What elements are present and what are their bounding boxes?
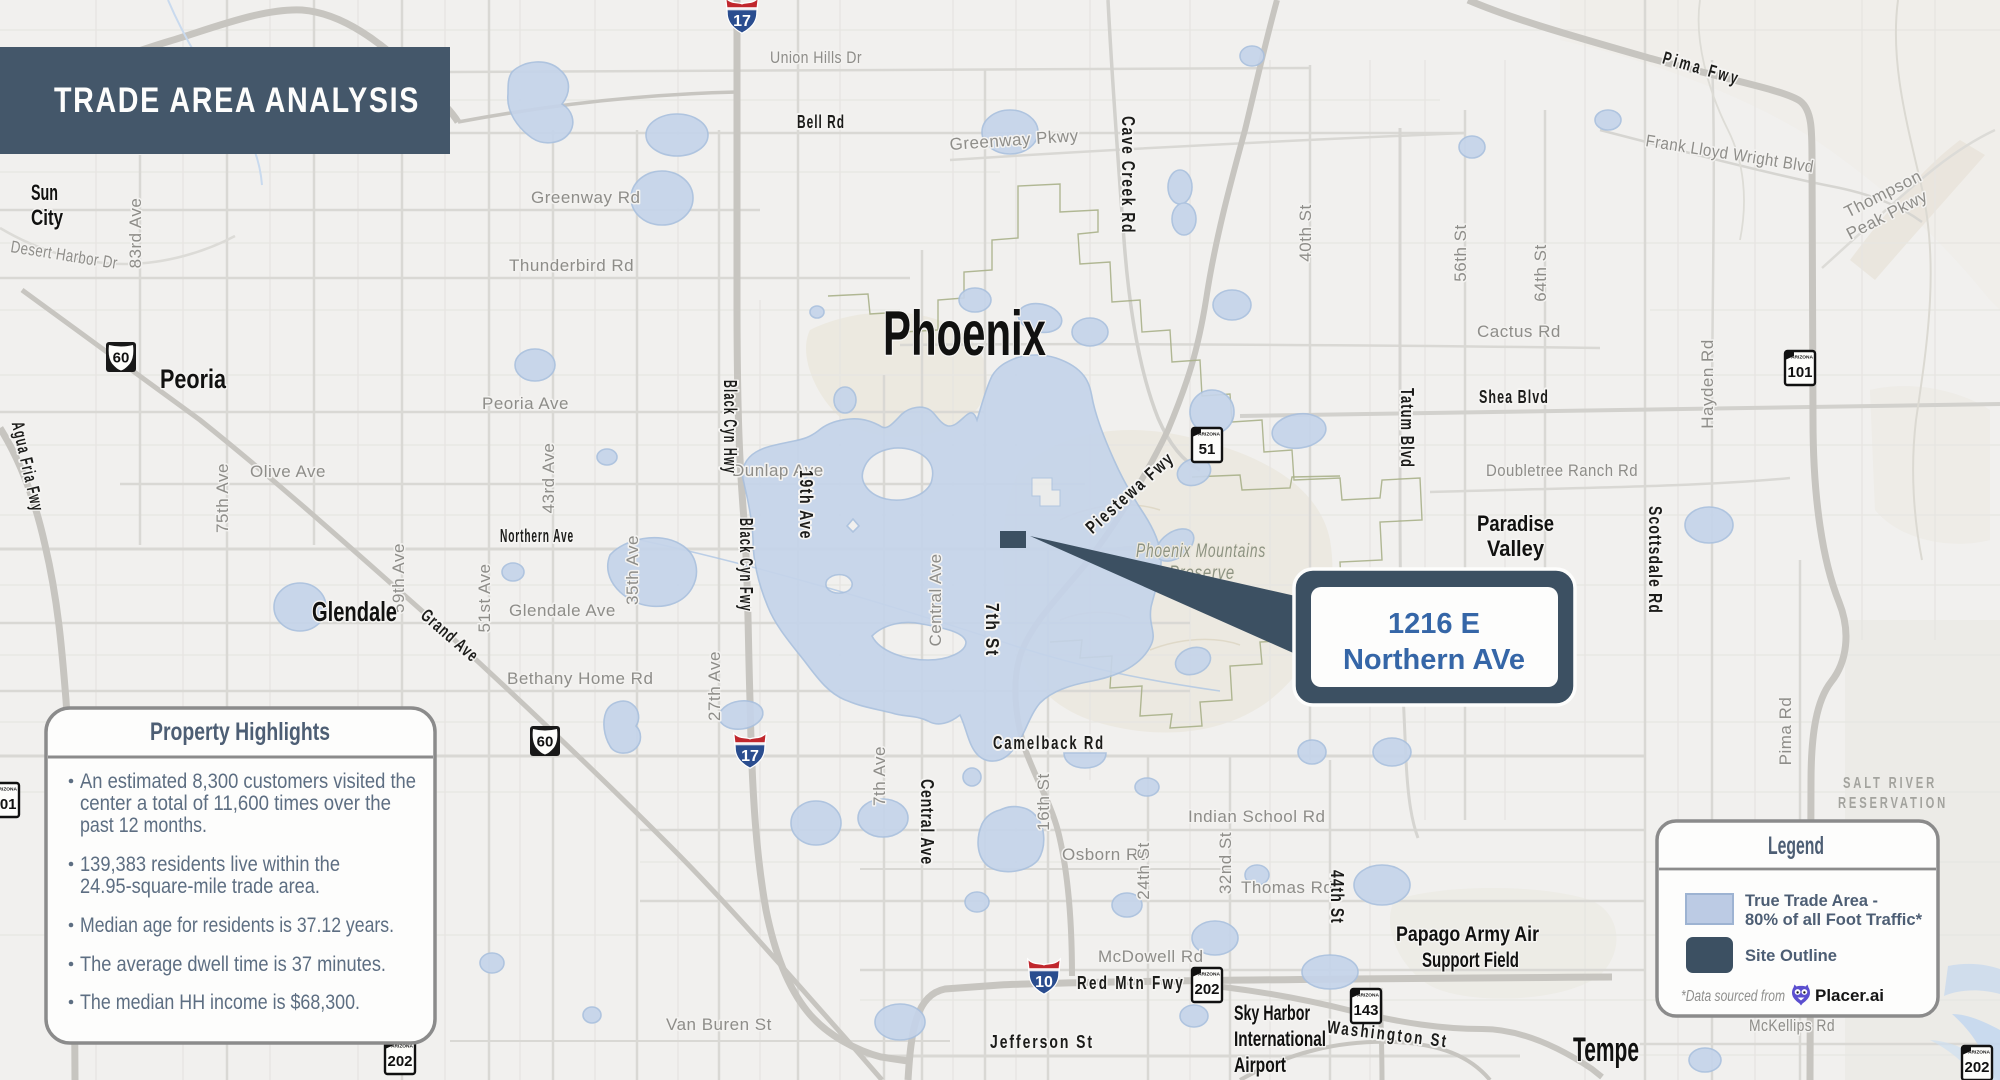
- svg-text:McKellips Rd: McKellips Rd: [1749, 1016, 1835, 1035]
- svg-text:64th St: 64th St: [1531, 244, 1550, 301]
- svg-text:The median HH income is $68,30: The median HH income is $68,300.: [80, 991, 360, 1014]
- svg-text:Black Cyn Fwy: Black Cyn Fwy: [736, 518, 756, 612]
- svg-text:60: 60: [537, 734, 554, 751]
- svg-text:1216 E: 1216 E: [1388, 608, 1480, 640]
- svg-text:Black Cyn Hwy: Black Cyn Hwy: [720, 380, 740, 474]
- svg-text:The average dwell time is 37 m: The average dwell time is 37 minutes.: [80, 953, 386, 976]
- svg-text:Red Mtn Fwy: Red Mtn Fwy: [1077, 973, 1185, 993]
- svg-text:Glendale: Glendale: [312, 596, 397, 627]
- svg-text:19th Ave: 19th Ave: [796, 470, 816, 540]
- svg-text:17: 17: [733, 13, 751, 30]
- svg-text:51st Ave: 51st Ave: [475, 564, 494, 633]
- svg-text:Phoenix: Phoenix: [883, 299, 1046, 369]
- svg-text:Jefferson St: Jefferson St: [990, 1032, 1094, 1052]
- svg-text:Indian School Rd: Indian School Rd: [1188, 807, 1325, 826]
- svg-text:7th Ave: 7th Ave: [870, 746, 889, 806]
- svg-text:Greenway Rd: Greenway Rd: [531, 188, 640, 207]
- svg-text:Scottsdale Rd: Scottsdale Rd: [1645, 506, 1665, 614]
- svg-text:Tatum Blvd: Tatum Blvd: [1397, 388, 1417, 468]
- svg-text:43rd Ave: 43rd Ave: [539, 443, 558, 514]
- svg-text:True Trade Area -: True Trade Area -: [1745, 892, 1878, 910]
- svg-text:17: 17: [741, 748, 759, 765]
- svg-text:Olive Ave: Olive Ave: [250, 462, 326, 481]
- svg-text:RESERVATION: RESERVATION: [1838, 795, 1948, 812]
- svg-text:*Data sourced from: *Data sourced from: [1681, 988, 1785, 1005]
- svg-text:Support Field: Support Field: [1422, 949, 1519, 972]
- svg-text:51: 51: [1199, 441, 1216, 458]
- svg-text:Camelback Rd: Camelback Rd: [993, 733, 1105, 753]
- svg-text:143: 143: [1353, 1002, 1378, 1019]
- svg-text:Doubletree Ranch Rd: Doubletree Ranch Rd: [1486, 461, 1638, 480]
- svg-text:Airport: Airport: [1234, 1054, 1286, 1077]
- svg-text:Northern AVe: Northern AVe: [1343, 644, 1525, 676]
- svg-text:Thomas Rd: Thomas Rd: [1241, 878, 1333, 897]
- svg-text:24th St: 24th St: [1134, 842, 1153, 899]
- svg-text:Pima Rd: Pima Rd: [1776, 697, 1795, 766]
- svg-text:27th Ave: 27th Ave: [705, 651, 724, 721]
- svg-text:202: 202: [387, 1053, 412, 1070]
- svg-text:Union Hills Dr: Union Hills Dr: [770, 48, 862, 67]
- svg-text:Thunderbird Rd: Thunderbird Rd: [509, 256, 634, 275]
- svg-text:7th St: 7th St: [982, 603, 1002, 657]
- svg-text:Northern Ave: Northern Ave: [500, 526, 574, 546]
- svg-text:Paradise: Paradise: [1477, 511, 1554, 536]
- svg-text:Peoria: Peoria: [160, 364, 227, 394]
- svg-text:Median age for residents is 37: Median age for residents is 37.12 years.: [80, 914, 394, 937]
- svg-text:Bethany Home Rd: Bethany Home Rd: [507, 669, 653, 688]
- svg-text:Bell Rd: Bell Rd: [797, 112, 845, 132]
- svg-text:Papago Army Air: Papago Army Air: [1396, 923, 1539, 946]
- svg-text:Central Ave: Central Ave: [926, 553, 945, 646]
- svg-text:Placer.ai: Placer.ai: [1815, 986, 1884, 1005]
- svg-text:101: 101: [0, 796, 17, 813]
- svg-text:center a total of 11,600 times: center a total of 11,600 times over the: [80, 792, 391, 815]
- svg-text:60: 60: [113, 350, 130, 367]
- svg-text:Van Buren St: Van Buren St: [666, 1015, 772, 1034]
- svg-text:Phoenix Mountains: Phoenix Mountains: [1136, 541, 1266, 562]
- svg-text:83rd Ave: 83rd Ave: [126, 198, 145, 269]
- svg-text:56th St: 56th St: [1451, 224, 1470, 281]
- svg-text:Site Outline: Site Outline: [1745, 947, 1837, 965]
- svg-text:International: International: [1234, 1028, 1326, 1051]
- svg-text:24.95-square-mile trade area.: 24.95-square-mile trade area.: [80, 875, 320, 898]
- svg-text:Cactus Rd: Cactus Rd: [1477, 322, 1561, 341]
- svg-text:202: 202: [1964, 1059, 1989, 1076]
- svg-text:City: City: [31, 205, 64, 230]
- svg-text:35th Ave: 35th Ave: [623, 535, 642, 605]
- svg-text:16th St: 16th St: [1034, 773, 1053, 830]
- svg-text:Sky Harbor: Sky Harbor: [1234, 1002, 1310, 1025]
- svg-text:Glendale Ave: Glendale Ave: [509, 601, 616, 620]
- svg-text:40th St: 40th St: [1296, 204, 1315, 261]
- svg-text:10: 10: [1035, 974, 1053, 991]
- svg-text:past 12 months.: past 12 months.: [80, 814, 207, 837]
- svg-text:Property Highlights: Property Highlights: [150, 718, 330, 746]
- svg-text:101: 101: [1787, 364, 1812, 381]
- svg-text:Central Ave: Central Ave: [917, 779, 937, 865]
- svg-text:139,383 residents live within: 139,383 residents live within the: [80, 853, 340, 876]
- svg-text:McDowell Rd: McDowell Rd: [1098, 947, 1204, 966]
- svg-text:Valley: Valley: [1487, 536, 1545, 561]
- svg-text:Peoria Ave: Peoria Ave: [482, 394, 569, 413]
- svg-text:Cave Creek Rd: Cave Creek Rd: [1118, 116, 1138, 234]
- svg-text:An estimated 8,300 customers v: An estimated 8,300 customers visited the: [80, 770, 416, 793]
- svg-text:Sun: Sun: [31, 180, 58, 205]
- svg-text:Shea Blvd: Shea Blvd: [1479, 387, 1549, 407]
- svg-text:80% of all Foot Traffic*: 80% of all Foot Traffic*: [1745, 911, 1923, 929]
- svg-text:202: 202: [1194, 981, 1219, 998]
- svg-text:SALT RIVER: SALT RIVER: [1843, 775, 1937, 792]
- svg-text:44th St: 44th St: [1327, 870, 1347, 924]
- svg-text:Legend: Legend: [1768, 832, 1824, 860]
- svg-text:32nd St: 32nd St: [1216, 832, 1235, 894]
- svg-text:Hayden Rd: Hayden Rd: [1698, 339, 1717, 429]
- svg-text:Tempe: Tempe: [1573, 1031, 1639, 1069]
- svg-text:TRADE AREA ANALYSIS: TRADE AREA ANALYSIS: [54, 81, 420, 120]
- svg-text:75th Ave: 75th Ave: [213, 463, 232, 533]
